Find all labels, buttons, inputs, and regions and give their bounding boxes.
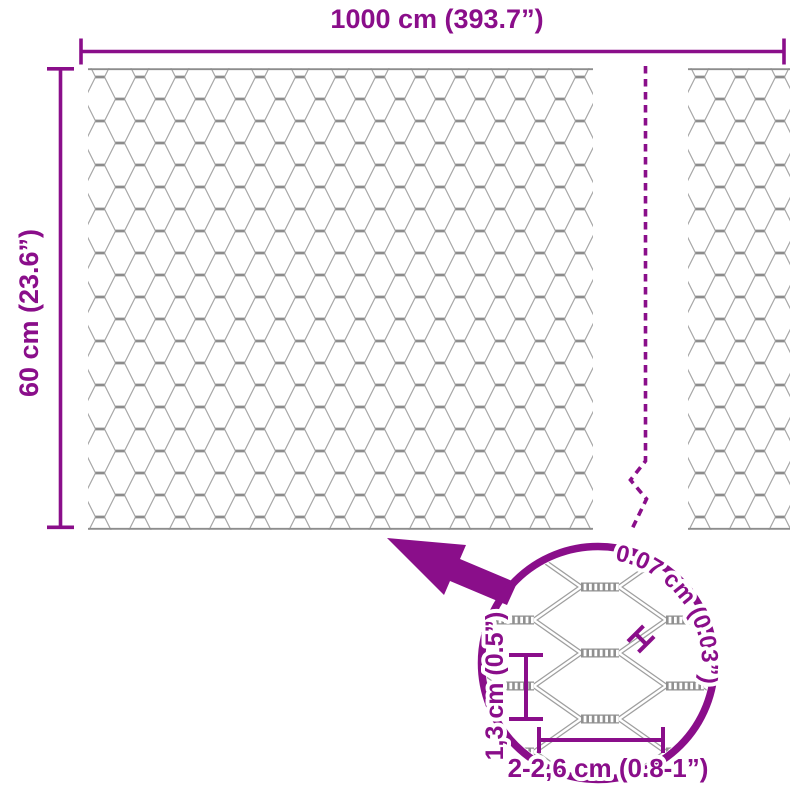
width-label: 1000 cm (393.7”) — [330, 4, 543, 34]
height-label: 60 cm (23.6”) — [14, 229, 44, 397]
product-dimension-diagram: 1000 cm (393.7”) 60 cm (23.6”) — [0, 0, 800, 800]
diagram-canvas: 1000 cm (393.7”) 60 cm (23.6”) — [0, 0, 800, 800]
cell-height-label: 1,3 cm (0.5”) — [481, 612, 509, 761]
width-dimension: 1000 cm (393.7”) — [81, 4, 784, 65]
zoom-arrow-icon — [387, 538, 517, 605]
cell-width-label: 2-2,6 cm (0.8-1”) — [508, 753, 709, 783]
break-dashed-line — [631, 66, 647, 528]
mesh-panel-main — [88, 68, 593, 530]
height-dimension: 60 cm (23.6”) — [14, 69, 74, 528]
magnifier-detail: 0.07 cm (0.03”) 1,3 cm (0.5”) 2-2,6 cm (… — [478, 540, 723, 783]
mesh-panel-right-strip — [688, 68, 790, 530]
